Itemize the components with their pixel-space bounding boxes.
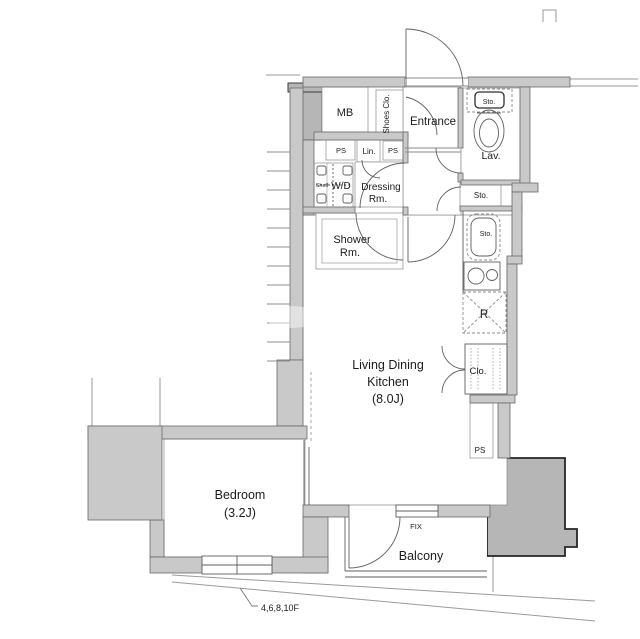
bedroom-label-1: Bedroom [215,488,266,502]
linen-label: Lin. [363,147,376,156]
shoes-closet-label: Shoes Clo. [382,94,391,133]
closet-label: Clo. [470,366,487,377]
floor-plan-svg: MB Shoes Clo. Entrance Sto. Lav. PS Lin.… [0,0,640,639]
bedroom-label-2: (3.2J) [224,506,256,520]
dressing-label-1: Dressing [361,182,400,193]
floor-plan-page: MB Shoes Clo. Entrance Sto. Lav. PS Lin.… [0,0,640,639]
ps1-label: PS [336,146,346,155]
floor-note-label: 4,6,8,10F [261,603,300,613]
ldk-label-1: Living Dining [352,358,424,372]
ps2-label: PS [388,146,398,155]
storage-toilet-label: Sto. [483,99,496,106]
dressing-label-2: Rm. [369,194,387,205]
ps3-label: PS [475,446,486,455]
hall-floor [403,87,461,215]
shower-label-2: Rm. [340,247,360,259]
refrigerator-label: R [480,309,488,321]
storage-kitchen-label: Sto. [480,231,493,238]
washer-dryer-label: W/D [331,181,350,192]
fix-window-label: FIX [410,522,422,531]
shower-label-1: Shower [333,234,371,246]
lavatory-label: Lav. [481,150,500,162]
storage-hall-label: Sto. [474,191,488,200]
balcony-label: Balcony [399,549,444,563]
entrance-label: Entrance [410,116,456,128]
mb-label: MB [337,107,354,119]
shelf-label: Shelf [316,183,329,189]
ldk-label-3: (8.0J) [372,392,404,406]
entrance-door-sill [405,78,468,87]
ldk-label-2: Kitchen [367,375,409,389]
side-block-left [88,426,162,520]
